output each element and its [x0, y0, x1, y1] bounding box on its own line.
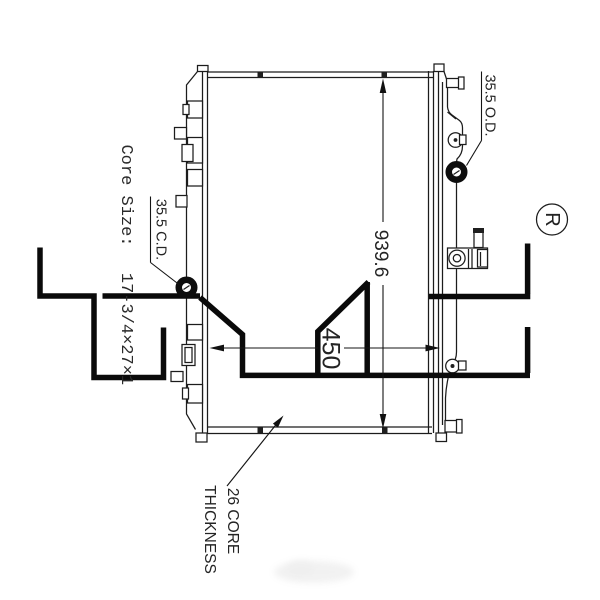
core-thickness-leader — [227, 419, 281, 486]
top-nipple-cap — [459, 77, 465, 89]
right-tank — [429, 64, 488, 442]
core-width-text: 450 — [317, 328, 345, 370]
right-port-leader — [467, 141, 482, 166]
registered-symbol: R — [537, 204, 568, 235]
left-tank — [171, 66, 208, 443]
left-port-text: 35.5 C.D. — [153, 199, 169, 260]
core-edges — [207, 72, 433, 435]
mount-clip-tab — [182, 145, 193, 162]
label-core-thickness: 26 CORE THICKNESS — [201, 416, 284, 574]
left-port-leader — [151, 263, 180, 285]
core-thickness-line2: THICKNESS — [201, 485, 218, 574]
solder-tab — [258, 427, 264, 435]
label-left-port: 35.5 C.D. — [151, 197, 180, 285]
mount-clip-tab — [183, 388, 189, 399]
header-cap-top — [198, 66, 209, 72]
solder-tab — [382, 72, 388, 79]
radiator-technical-drawing: 939.6 450 Core Size: 17-3/4×27×1 35.5 C.… — [0, 0, 600, 600]
label-core-size: Core Size: 17-3/4×27×1 — [116, 144, 135, 385]
mount-clip — [188, 101, 203, 118]
watermark — [274, 561, 354, 583]
header-cap-bottom — [196, 433, 207, 442]
page: { "drawing": { "labels": { "core_size_la… — [0, 0, 600, 600]
core-size-value-text: 17-3/4×27×1 — [116, 273, 135, 385]
mount-pin — [176, 196, 187, 208]
arrow-down — [380, 414, 387, 429]
petcock — [474, 232, 483, 248]
mount-pin — [175, 128, 187, 140]
top-nipple — [447, 79, 460, 88]
bottom-nipple-cap — [457, 420, 463, 434]
registered-symbol-text: R — [541, 212, 563, 226]
core-size-label-text: Core Size: — [116, 144, 135, 246]
left-step-bracket — [40, 248, 164, 378]
label-right-port: 35.5 O.D. — [467, 72, 498, 166]
mount-clip — [188, 170, 203, 187]
core-thickness-line1: 26 CORE — [224, 488, 241, 554]
arrow-up — [380, 79, 387, 94]
radiator-outline — [171, 64, 488, 442]
mount-bracket-box-inner — [185, 348, 192, 363]
mount-pin — [171, 372, 183, 382]
right-port-text: 35.5 O.D. — [482, 74, 498, 136]
header-cap-bottom — [436, 433, 447, 442]
mount-clip-tab — [183, 105, 189, 115]
overall-length-text: 939.6 — [370, 230, 391, 278]
mount-clip — [188, 325, 203, 341]
mount-clip — [188, 385, 203, 404]
header-cap-top — [434, 64, 444, 72]
solder-tab — [258, 72, 264, 79]
side-fitting — [448, 248, 488, 269]
arrow-left — [210, 345, 225, 352]
petcock-cap — [473, 228, 484, 233]
arrow-right — [426, 345, 441, 352]
